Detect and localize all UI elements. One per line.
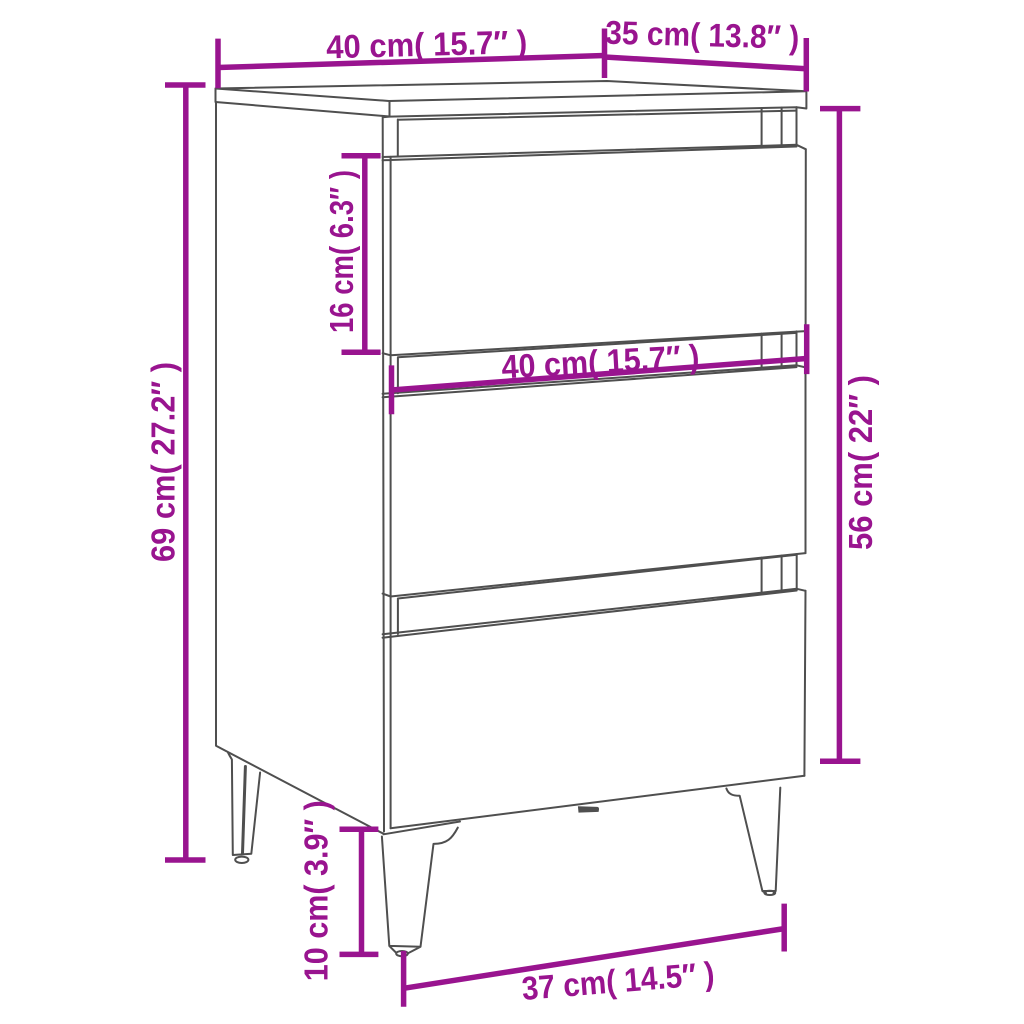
svg-text:69 cm( 27.2″ ): 69 cm( 27.2″ )	[145, 362, 182, 562]
svg-text:56 cm( 22″ ): 56 cm( 22″ )	[842, 375, 879, 550]
svg-text:16 cm( 6.3″ ): 16 cm( 6.3″ )	[323, 170, 360, 333]
svg-text:40 cm( 15.7″ ): 40 cm( 15.7″ )	[326, 23, 528, 65]
svg-text:10 cm( 3.9″ ): 10 cm( 3.9″ )	[298, 800, 335, 981]
svg-text:35 cm( 13.8″ ): 35 cm( 13.8″ )	[605, 14, 800, 56]
